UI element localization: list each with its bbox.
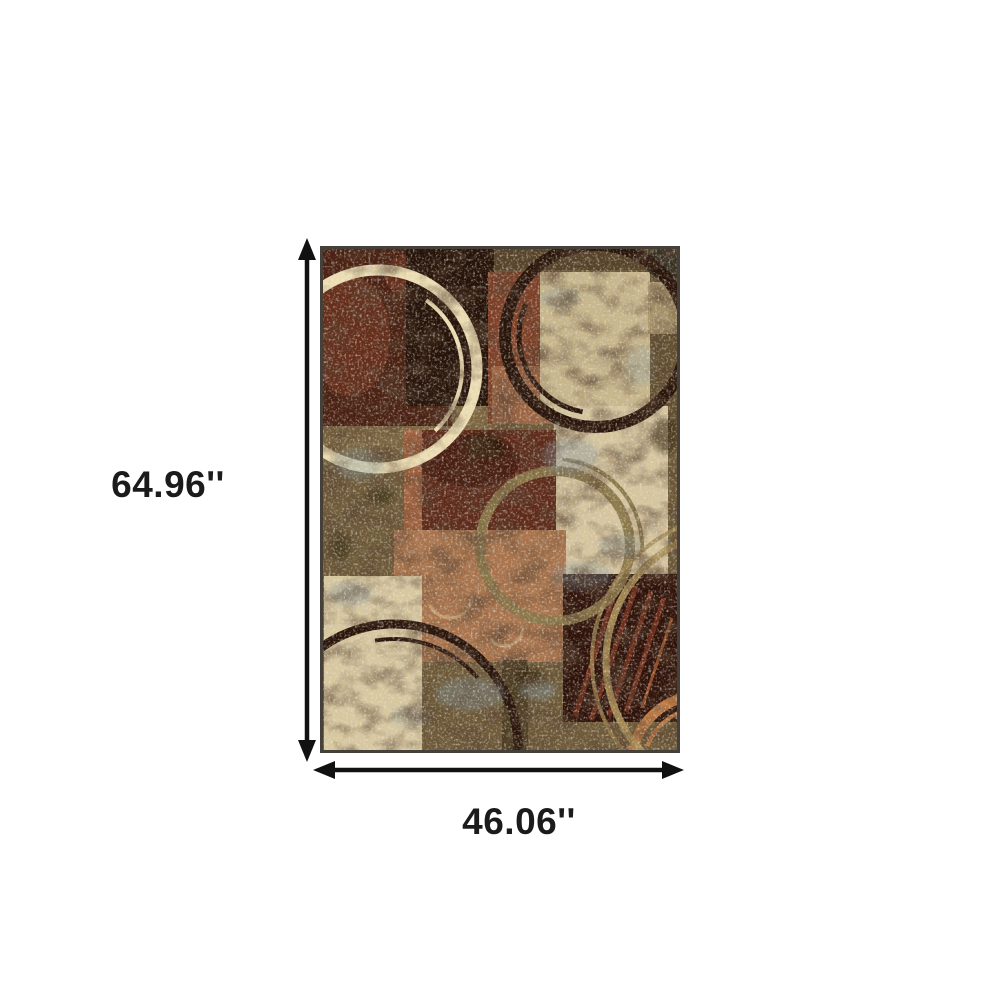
arrow-up-head-icon — [298, 238, 316, 260]
product-dimension-figure: 64.96'' 46.06'' — [0, 0, 1000, 1000]
arrow-right-head-icon — [662, 761, 684, 779]
arrow-left-head-icon — [313, 761, 335, 779]
height-dimension-label: 64.96'' — [48, 463, 288, 507]
width-dimension-label: 46.06'' — [399, 800, 639, 844]
rug-product-image — [320, 246, 680, 753]
rug-texture — [320, 246, 680, 753]
height-dimension-arrow — [294, 236, 320, 766]
blue-speckle-overlay — [320, 246, 680, 753]
rug-art — [320, 246, 680, 753]
width-dimension-arrow — [309, 757, 689, 783]
